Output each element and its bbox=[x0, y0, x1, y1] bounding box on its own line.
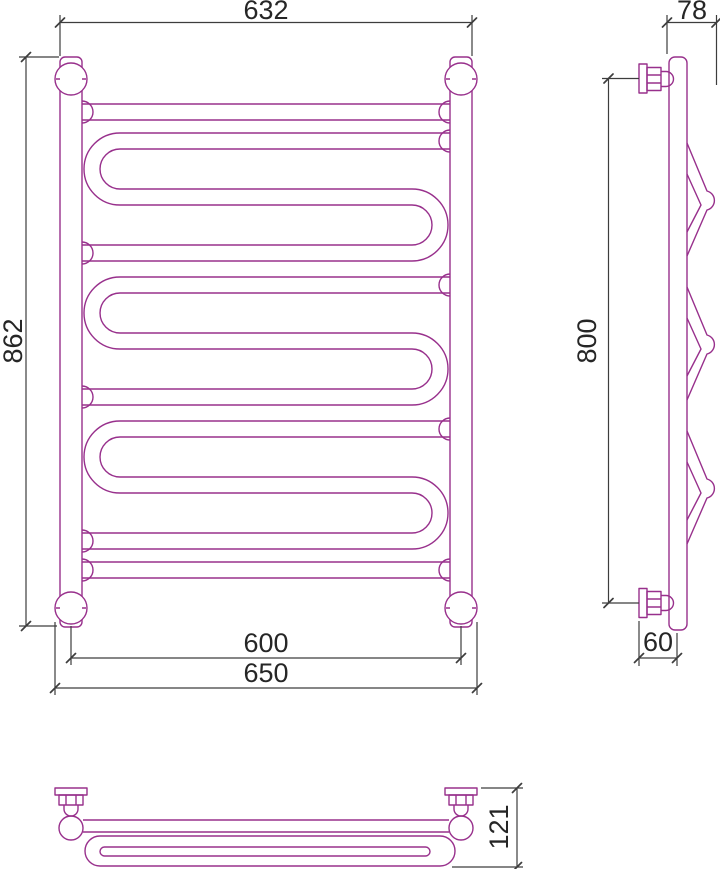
dim-label-front-width: 632 bbox=[243, 0, 288, 25]
side-view bbox=[639, 57, 714, 630]
plan-left-fitting bbox=[55, 788, 87, 816]
dimension-side-bottom-offset: 60 bbox=[635, 621, 682, 666]
side-chevron-2 bbox=[687, 287, 714, 400]
plan-view bbox=[55, 788, 477, 866]
ball-joints bbox=[55, 63, 477, 624]
front-view bbox=[55, 57, 477, 627]
side-chevron-3 bbox=[687, 431, 714, 544]
plan-right-fitting bbox=[445, 788, 477, 816]
dimension-side-depth: 78 bbox=[663, 0, 720, 85]
side-chevron-1 bbox=[687, 143, 714, 256]
dimension-front-width: 632 bbox=[56, 0, 477, 56]
plan-coil-outer bbox=[85, 836, 455, 866]
dim-label-side-height: 800 bbox=[572, 318, 602, 363]
dimension-side-height: 800 bbox=[572, 74, 639, 608]
dim-label-side-bottom-offset: 60 bbox=[643, 627, 673, 657]
serpentine-coil-3 bbox=[82, 418, 450, 552]
plan-rung-bar bbox=[83, 820, 449, 832]
dim-label-plan-depth: 121 bbox=[484, 804, 514, 849]
serpentine-coil-1 bbox=[82, 130, 450, 264]
technical-drawing-page: 632 78 862 800 600 650 60 121 bbox=[0, 0, 720, 869]
bottom-rung bbox=[82, 559, 450, 581]
dim-label-bottom-overall: 650 bbox=[243, 658, 288, 688]
dim-label-side-depth: 78 bbox=[677, 0, 707, 25]
towel-rail-drawing: 632 78 862 800 600 650 60 121 bbox=[0, 0, 720, 869]
plan-left-post-circle bbox=[59, 816, 83, 840]
dim-label-front-height: 862 bbox=[0, 318, 28, 363]
front-left-post bbox=[60, 57, 82, 627]
plan-coil-inner bbox=[100, 847, 430, 856]
top-rung bbox=[82, 101, 450, 123]
dim-label-bottom-center: 600 bbox=[243, 628, 288, 658]
serpentine-coil-2 bbox=[82, 274, 450, 408]
dimension-front-height: 862 bbox=[0, 53, 59, 631]
front-right-post bbox=[450, 57, 472, 627]
plan-right-post-circle bbox=[449, 816, 473, 840]
side-post-tube bbox=[669, 57, 687, 630]
